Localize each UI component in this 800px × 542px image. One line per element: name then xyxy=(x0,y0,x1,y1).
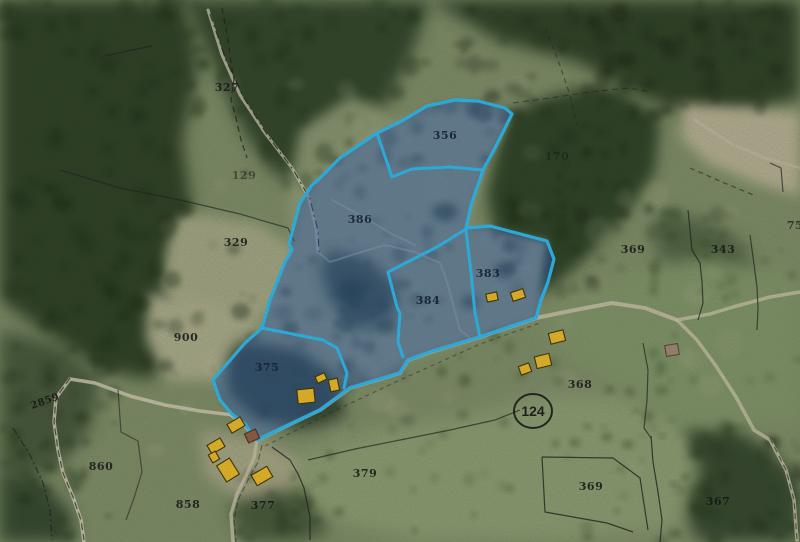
parcel-label: 356 xyxy=(433,129,457,142)
parcel-label: 383 xyxy=(476,267,500,280)
parcel-label: 368 xyxy=(568,378,592,391)
photo-grain xyxy=(0,0,800,542)
parcel-label: 343 xyxy=(711,243,735,256)
parcel-label: 129 xyxy=(232,169,256,182)
road-number-text: 124 xyxy=(521,403,545,419)
cadastral-map-viewport[interactable]: 3271293293563863833843751709002859860858… xyxy=(0,0,800,542)
parcel-label: 367 xyxy=(706,495,730,508)
parcel-label: 377 xyxy=(251,499,275,512)
parcel-label: 379 xyxy=(353,467,377,480)
parcel-label: 386 xyxy=(348,213,372,226)
parcel-label: 858 xyxy=(176,498,200,511)
parcel-label: 369 xyxy=(579,480,603,493)
parcel-label: 369 xyxy=(621,243,645,256)
parcel-label: 900 xyxy=(174,331,198,344)
parcel-label: 327 xyxy=(215,81,239,94)
map-canvas[interactable]: 3271293293563863833843751709002859860858… xyxy=(0,0,800,542)
parcel-label: 75 xyxy=(787,219,800,232)
parcel-label: 375 xyxy=(255,361,279,374)
parcel-label: 860 xyxy=(89,460,113,473)
parcel-label: 384 xyxy=(416,294,440,307)
parcel-label: 329 xyxy=(224,236,248,249)
parcel-label: 170 xyxy=(545,150,569,163)
